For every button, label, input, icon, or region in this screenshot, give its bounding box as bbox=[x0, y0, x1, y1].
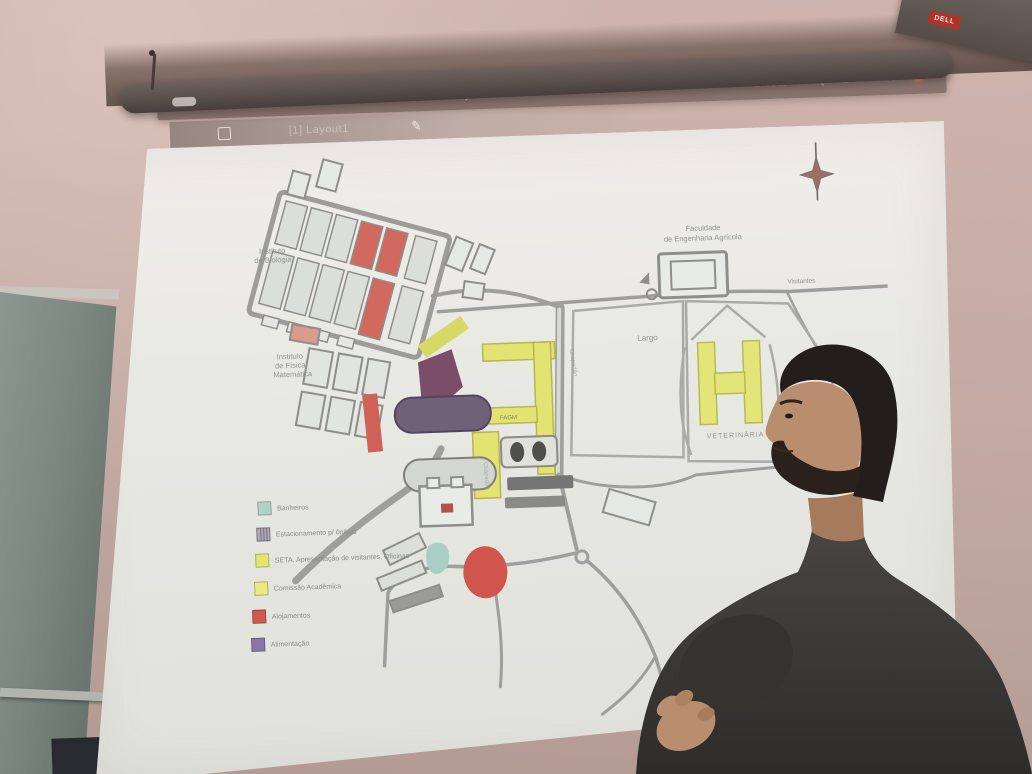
presenter bbox=[626, 334, 1032, 774]
feagri-building bbox=[638, 252, 728, 300]
label-visitantes: Visitantes bbox=[787, 278, 816, 286]
svg-text:Comissão Acadêmica: Comissão Acadêmica bbox=[274, 583, 342, 592]
legend-item: Alimentação bbox=[252, 636, 310, 651]
stadium-oval bbox=[394, 395, 491, 433]
north-arrow-icon bbox=[799, 142, 835, 201]
pencil-icon[interactable]: ✎ bbox=[410, 118, 423, 135]
label-feagri: Faculdade bbox=[685, 223, 720, 233]
layout-square-icon[interactable] bbox=[218, 126, 231, 139]
photo-scene: Layout1 17.0% ▾ ≡ − + [1] Layout1 ✎ bbox=[0, 0, 1032, 774]
svg-text:Matemática: Matemática bbox=[273, 369, 313, 379]
biology-block bbox=[246, 191, 451, 366]
svg-text:Banheiros: Banheiros bbox=[277, 504, 309, 512]
tab-layout1[interactable]: [1] Layout1 bbox=[289, 123, 349, 137]
svg-text:Alojamentos: Alojamentos bbox=[272, 612, 311, 620]
legend-item: Banheiros bbox=[258, 500, 309, 515]
presenter-eye bbox=[785, 414, 793, 419]
alojamento-building bbox=[362, 393, 383, 452]
screen-case-sticker bbox=[172, 97, 196, 107]
label-chapadao: Chapadão bbox=[568, 349, 578, 378]
svg-text:Alimentação: Alimentação bbox=[271, 640, 310, 648]
presenter-neck bbox=[808, 490, 864, 541]
brand-label: DELL bbox=[927, 11, 961, 30]
svg-text:de Biologia: de Biologia bbox=[254, 255, 292, 265]
round-red-building bbox=[462, 545, 508, 599]
svg-text:de Engenharia Agrícola: de Engenharia Agrícola bbox=[664, 232, 743, 244]
screen-antenna-tip bbox=[149, 50, 155, 56]
legend-item: Alojamentos bbox=[253, 608, 311, 623]
label-fagm: FAGM bbox=[500, 415, 517, 422]
